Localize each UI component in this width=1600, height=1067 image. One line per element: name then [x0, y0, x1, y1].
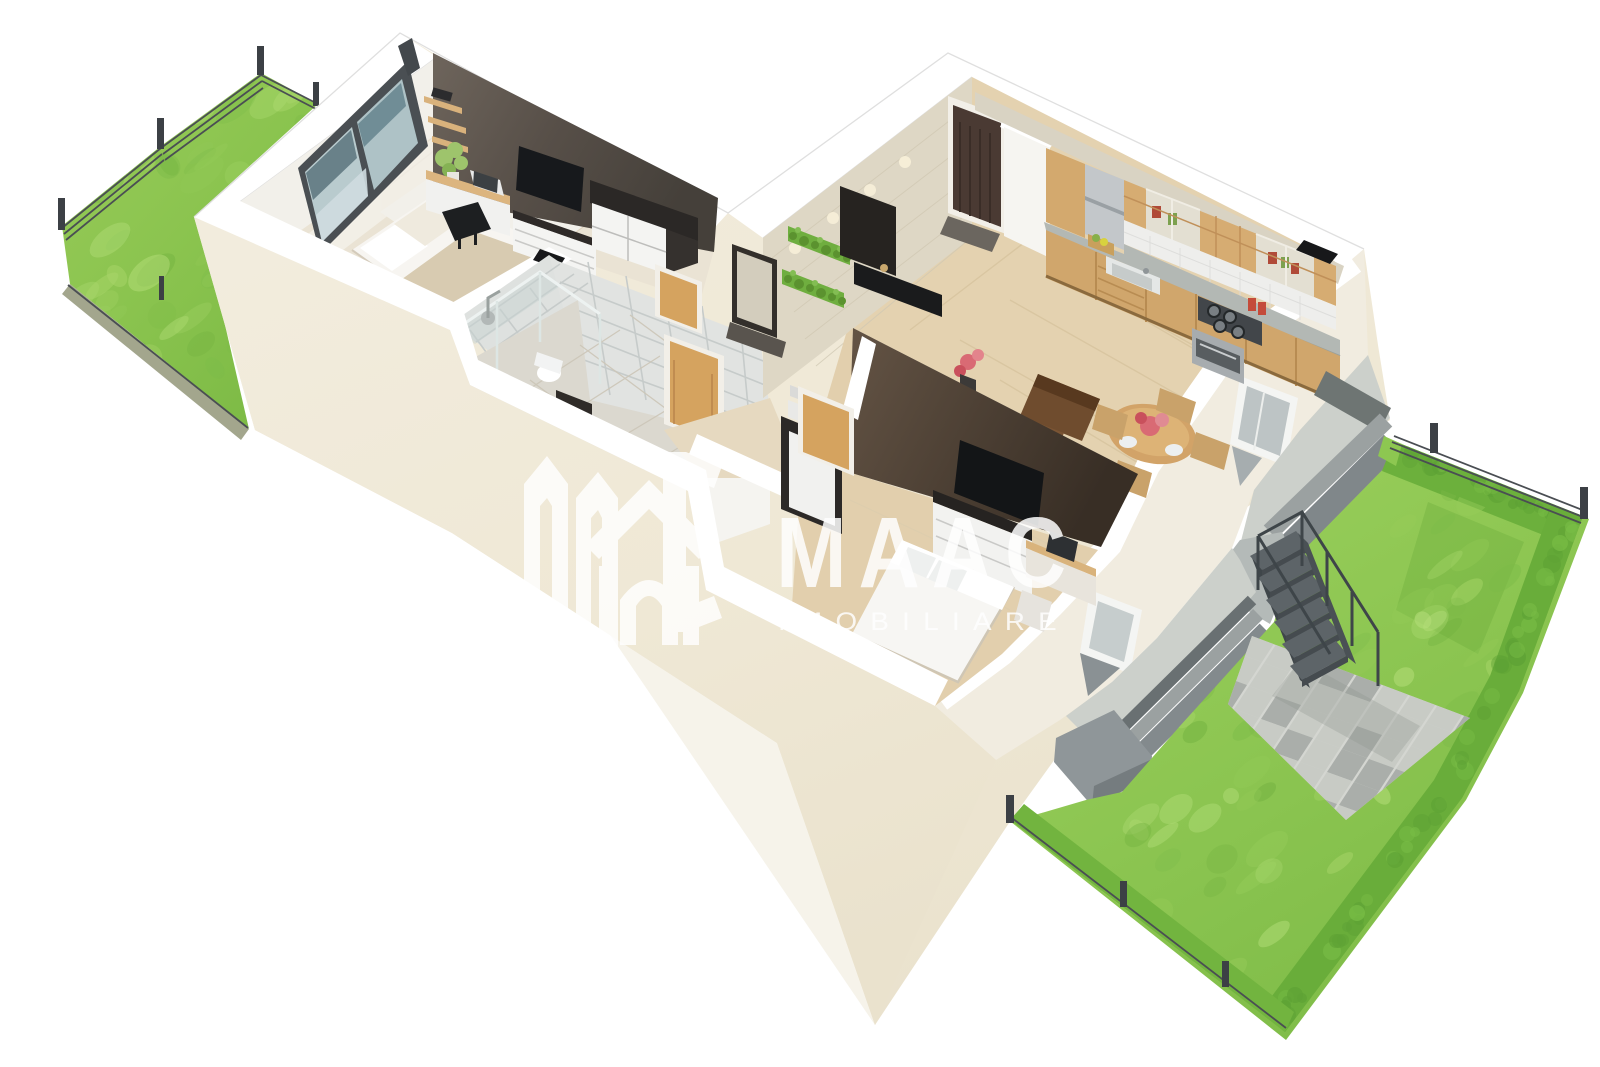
- svg-text:MAAC: MAAC: [776, 497, 1078, 609]
- svg-text:IMOBILIARE: IMOBILIARE: [778, 608, 1070, 636]
